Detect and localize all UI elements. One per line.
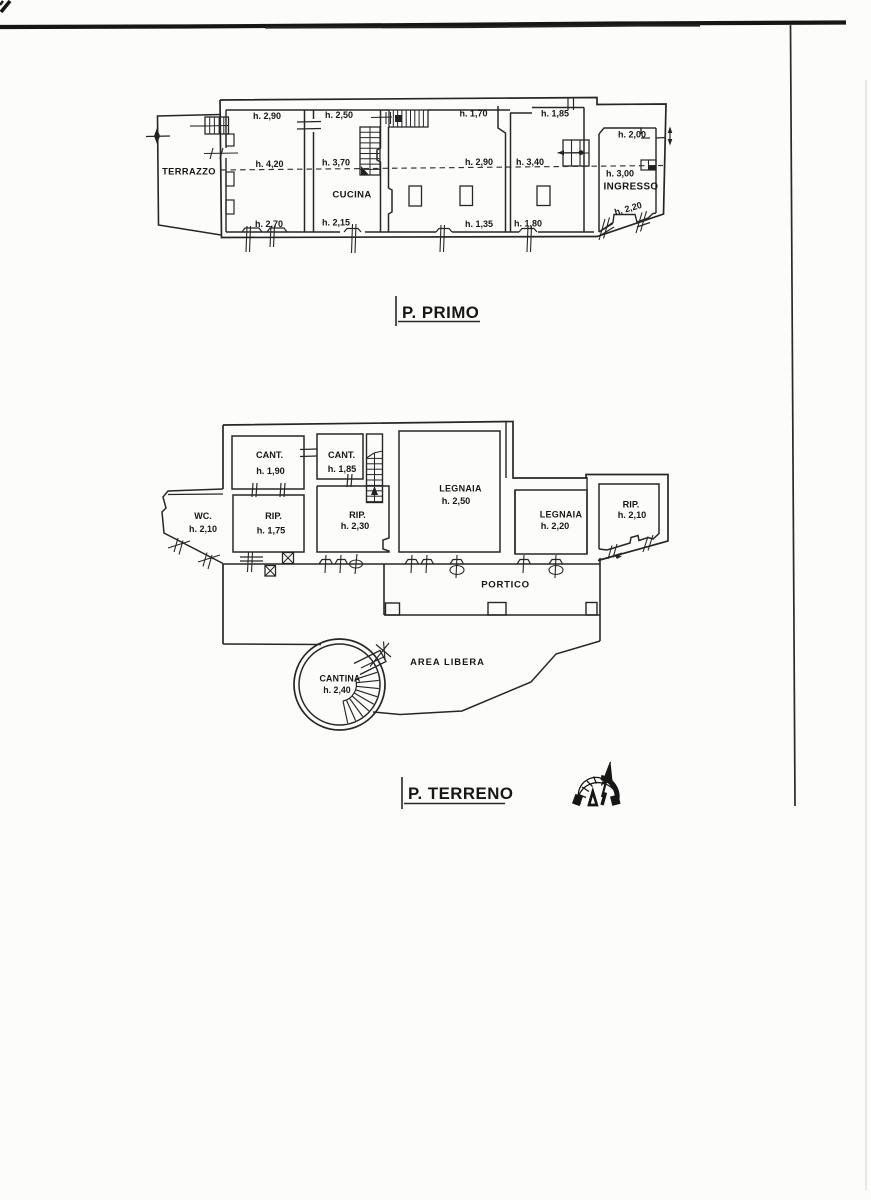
svg-text:h. 2,50: h. 2,50 [442, 496, 471, 506]
svg-text:PORTICO: PORTICO [481, 580, 530, 591]
svg-text:CANT.: CANT. [328, 450, 355, 460]
svg-text:h. 1,90: h. 1,90 [256, 466, 285, 476]
svg-text:LEGNAIA: LEGNAIA [439, 484, 482, 494]
svg-text:P. PRIMO: P. PRIMO [402, 303, 479, 322]
svg-text:TERRAZZO: TERRAZZO [162, 167, 216, 177]
svg-text:h. 1,75: h. 1,75 [257, 526, 286, 536]
svg-text:h. 2,30: h. 2,30 [341, 521, 370, 531]
svg-text:RIP.: RIP. [265, 511, 282, 521]
svg-text:h. 1,80: h. 1,80 [514, 219, 542, 229]
svg-text:h. 3,00: h. 3,00 [606, 169, 634, 179]
svg-text:RIP.: RIP. [623, 500, 640, 510]
svg-text:CUCINA: CUCINA [332, 190, 371, 201]
svg-text:h. 2,90: h. 2,90 [465, 157, 493, 167]
svg-text:INGRESSO: INGRESSO [604, 182, 659, 193]
svg-text:h. 2,15: h. 2,15 [322, 218, 350, 228]
svg-text:h. 1,85: h. 1,85 [541, 109, 569, 119]
svg-text:AREA LIBERA: AREA LIBERA [410, 656, 485, 667]
svg-text:h. 2,90: h. 2,90 [253, 111, 281, 121]
svg-text:h. 2,00: h. 2,00 [618, 130, 646, 140]
svg-text:h. 1,35: h. 1,35 [465, 219, 493, 229]
svg-text:WC.: WC. [194, 511, 212, 521]
svg-text:P. TERRENO: P. TERRENO [408, 784, 513, 803]
svg-text:h. 1,85: h. 1,85 [328, 464, 357, 474]
svg-text:h. 4,20: h. 4,20 [255, 159, 283, 169]
svg-text:h. 2,10: h. 2,10 [618, 510, 647, 520]
svg-text:h. 2,50: h. 2,50 [325, 110, 353, 120]
svg-text:h. 2,40: h. 2,40 [323, 685, 350, 695]
svg-text:h. 2,70: h. 2,70 [255, 219, 283, 229]
svg-text:LEGNAIA: LEGNAIA [540, 510, 583, 520]
svg-text:CANTINA: CANTINA [320, 674, 361, 684]
svg-text:RIP.: RIP. [349, 510, 366, 520]
svg-text:CANT.: CANT. [256, 450, 283, 460]
svg-text:h. 2,10: h. 2,10 [189, 524, 217, 534]
svg-text:h. 3,70: h. 3,70 [322, 158, 350, 168]
svg-text:h. 2,20: h. 2,20 [541, 521, 570, 531]
svg-text:h. 1,70: h. 1,70 [459, 109, 487, 119]
svg-text:h. 3,40: h. 3,40 [516, 157, 544, 167]
